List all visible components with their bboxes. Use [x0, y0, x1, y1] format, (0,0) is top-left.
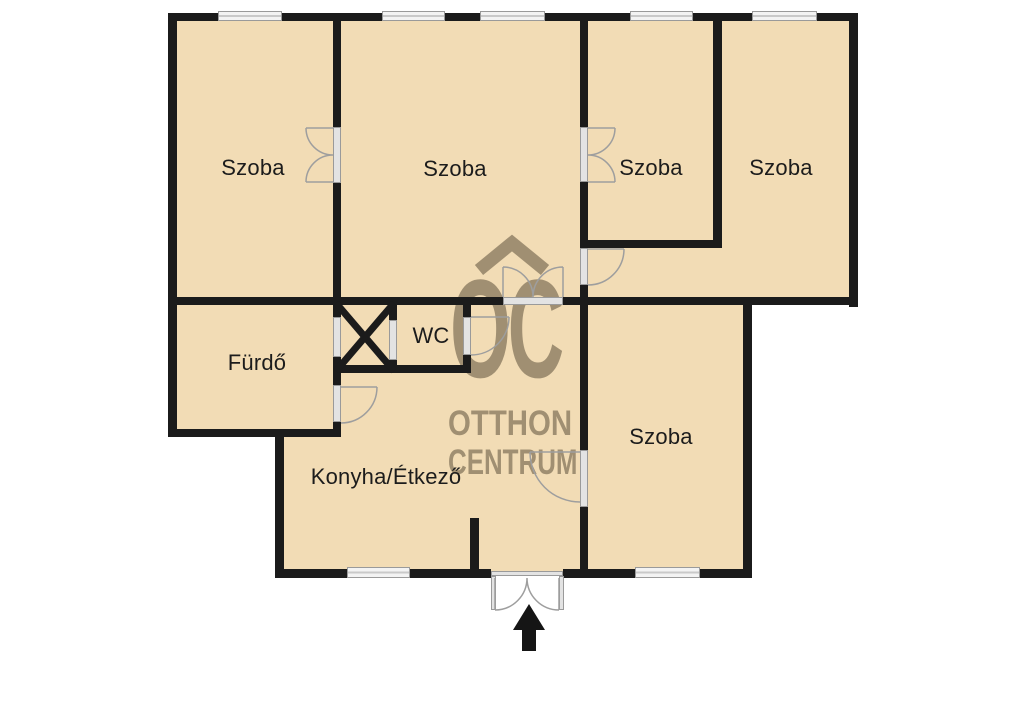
room-label-bathroom: Fürdő	[228, 350, 286, 376]
labels-layer: Szoba Szoba Szoba Szoba Szoba Fürdő WC K…	[0, 0, 1024, 724]
room-label-top-right-inner: Szoba	[619, 155, 682, 181]
room-label-kitchen-dining: Konyha/Étkező	[311, 464, 462, 490]
floorplan-canvas: OC OTTHON CENTRUM	[0, 0, 1024, 724]
room-label-top-right-outer: Szoba	[749, 155, 812, 181]
room-label-top-left: Szoba	[221, 155, 284, 181]
room-label-bottom-right: Szoba	[629, 424, 692, 450]
room-label-top-center: Szoba	[423, 156, 486, 182]
room-label-wc: WC	[412, 323, 449, 349]
